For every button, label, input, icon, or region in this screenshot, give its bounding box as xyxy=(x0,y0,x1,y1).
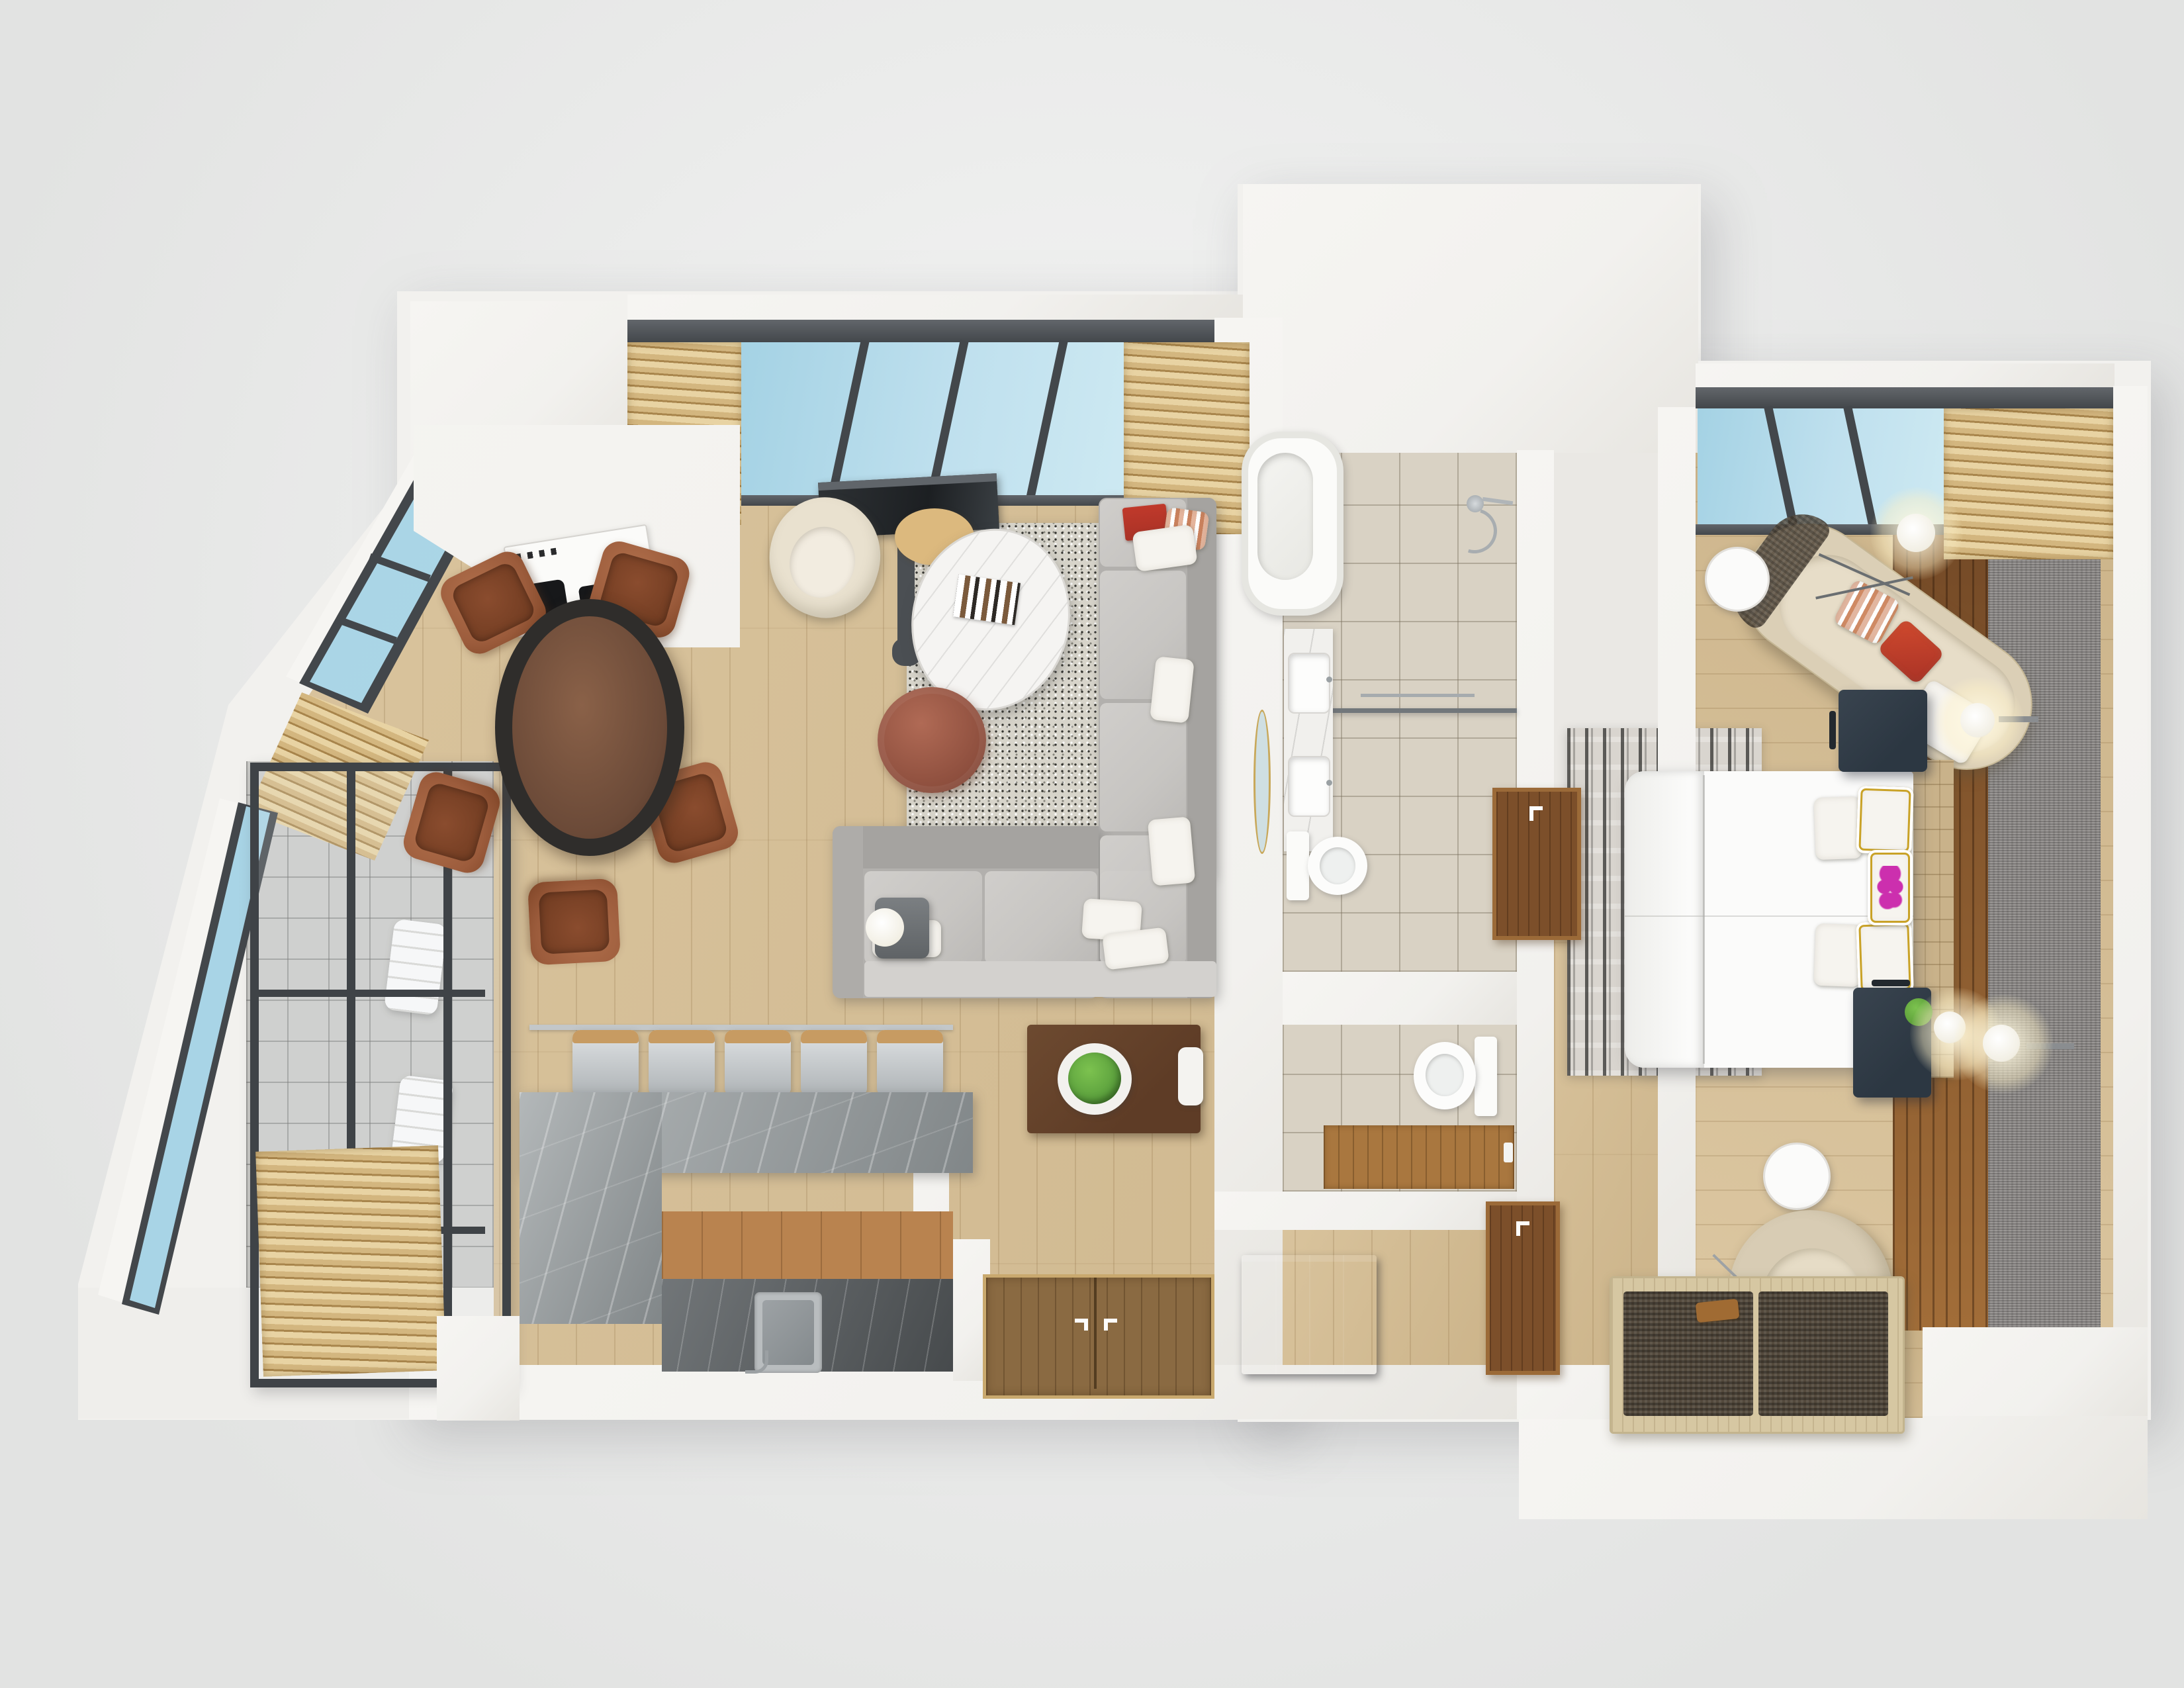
bath-toilet-bowl xyxy=(1308,837,1367,895)
vanity-sink-1 xyxy=(1288,653,1330,714)
wc-toilet-seat xyxy=(1426,1054,1464,1096)
wc-toilet-tank xyxy=(1475,1037,1497,1116)
sofa-front-edge xyxy=(864,961,1216,997)
bath-toilet-seat xyxy=(1320,847,1355,884)
sofa-pillow-back-1 xyxy=(1150,656,1195,724)
bedroom-window-blinds xyxy=(1944,408,2113,559)
bedroom-carpet-runner xyxy=(1988,424,2101,1329)
wardrobe-door-lower xyxy=(1486,1201,1560,1375)
nightstand-upper xyxy=(1839,690,1927,772)
bathtub xyxy=(1242,432,1343,616)
wardrobe-door-arrow-2 xyxy=(1529,806,1543,810)
sofa-pillow-arm xyxy=(1132,524,1197,572)
sofa-long-backrest xyxy=(833,826,1099,868)
wall-bedroom-south xyxy=(1923,1327,2148,1416)
nightstand-upper-handle xyxy=(1829,711,1836,749)
wall-east-outer xyxy=(2113,386,2148,1416)
bar-stool-wood-top xyxy=(572,1030,639,1043)
bedroom-floor-lamp xyxy=(1897,514,1935,552)
shower-towel-bar xyxy=(1361,694,1475,697)
bench-cushion-2 xyxy=(1758,1291,1888,1416)
bar-stool-wood-top xyxy=(649,1030,715,1043)
wall-top-band xyxy=(627,295,1250,320)
bed-crease-1 xyxy=(1703,775,1705,1064)
bar-stool-wood-top xyxy=(801,1030,867,1043)
knit-pouf xyxy=(878,687,986,793)
island-left-leg xyxy=(520,1092,662,1324)
bar-stool-2 xyxy=(649,1030,715,1096)
floorplan-scene xyxy=(0,0,2184,1688)
sofa-pillow-back-2 xyxy=(1148,816,1195,886)
bar-stool-4 xyxy=(801,1030,867,1096)
bar-stool-1 xyxy=(572,1030,639,1096)
wall-top-edge-dark xyxy=(627,320,1250,342)
wc-paper-holder xyxy=(1504,1143,1513,1162)
round-mirror xyxy=(1253,710,1271,854)
bed-pillow-white-2 xyxy=(1813,923,1862,987)
bed-pillow-orchid xyxy=(1868,850,1913,925)
dining-chair-s xyxy=(527,878,621,966)
sconce-upper xyxy=(1960,703,1995,737)
entry-door-mat xyxy=(983,1274,1214,1399)
bar-stool-5 xyxy=(877,1030,943,1096)
island-wood-tier xyxy=(662,1211,953,1279)
vanity-faucet-1 xyxy=(1326,677,1332,682)
bed-pillow-white-1 xyxy=(1813,796,1862,860)
entry-door-seam xyxy=(1094,1278,1097,1389)
wardrobe-door-upper xyxy=(1492,788,1581,940)
console-succulent xyxy=(1068,1053,1121,1104)
entry-door-handle-right-2 xyxy=(1104,1319,1108,1331)
wall-bedroom-top-band xyxy=(1696,363,2115,387)
vanity-faucet-2 xyxy=(1326,780,1332,786)
cooktop-knobs xyxy=(515,547,562,561)
cream-armchair-cushion xyxy=(780,518,864,606)
bar-stool-3 xyxy=(725,1030,791,1096)
bed-duvet-fold xyxy=(1625,771,1704,1068)
partition-rail-1 xyxy=(259,990,485,997)
bar-stool-wood-top xyxy=(877,1030,943,1043)
wall-wc-south xyxy=(1214,1192,1517,1230)
dining-chair-seat xyxy=(449,560,537,645)
sofa-long-cushion-2 xyxy=(985,871,1097,964)
sofa-long-arm xyxy=(833,826,863,998)
bathtub-basin xyxy=(1257,453,1313,580)
island-bench-white xyxy=(437,1316,520,1421)
vanity-sink-2 xyxy=(1288,756,1330,817)
island-sink-basin xyxy=(762,1300,814,1365)
console-vase xyxy=(1178,1047,1203,1105)
orchid-graphic xyxy=(1877,866,1903,910)
sofa-chaise-cushion-2 xyxy=(1100,703,1186,831)
shower-glass-partition xyxy=(1318,708,1517,713)
bath-toilet-tank xyxy=(1287,831,1309,900)
sofa-chaise-backrest xyxy=(1187,498,1216,998)
wc-toilet-bowl xyxy=(1414,1042,1476,1109)
wall-bedroom-top-dark xyxy=(1696,387,2115,408)
entry-shoe-cabinet xyxy=(1242,1255,1377,1374)
nightstand-lower-handle xyxy=(1872,980,1910,986)
wall-bath-wc-divider xyxy=(1283,972,1517,1025)
bed-pillow-gold-1 xyxy=(1856,786,1914,855)
entry-door-handle-left-2 xyxy=(1084,1319,1088,1331)
bedroom-side-table-2 xyxy=(1763,1143,1831,1210)
partition-blinds xyxy=(255,1145,446,1376)
living-floor-lamp-shade xyxy=(866,908,904,947)
foot-bench xyxy=(1610,1276,1905,1434)
bedroom-side-table-1 xyxy=(1705,547,1770,612)
coffee-table-magazines xyxy=(953,575,1021,625)
dining-table xyxy=(495,599,684,856)
dining-chair-seat xyxy=(413,781,491,864)
bar-stool-wood-top xyxy=(725,1030,791,1043)
island-sink xyxy=(754,1292,822,1373)
sconce-lower xyxy=(1983,1025,2020,1062)
island-faucet xyxy=(745,1350,768,1374)
wall-bath-top-block xyxy=(1243,184,1698,453)
wardrobe-door-arrow-2 xyxy=(1516,1221,1529,1225)
dining-chair-seat xyxy=(539,889,610,954)
wc-wood-mat xyxy=(1324,1125,1514,1189)
bar-footrail xyxy=(529,1025,953,1030)
